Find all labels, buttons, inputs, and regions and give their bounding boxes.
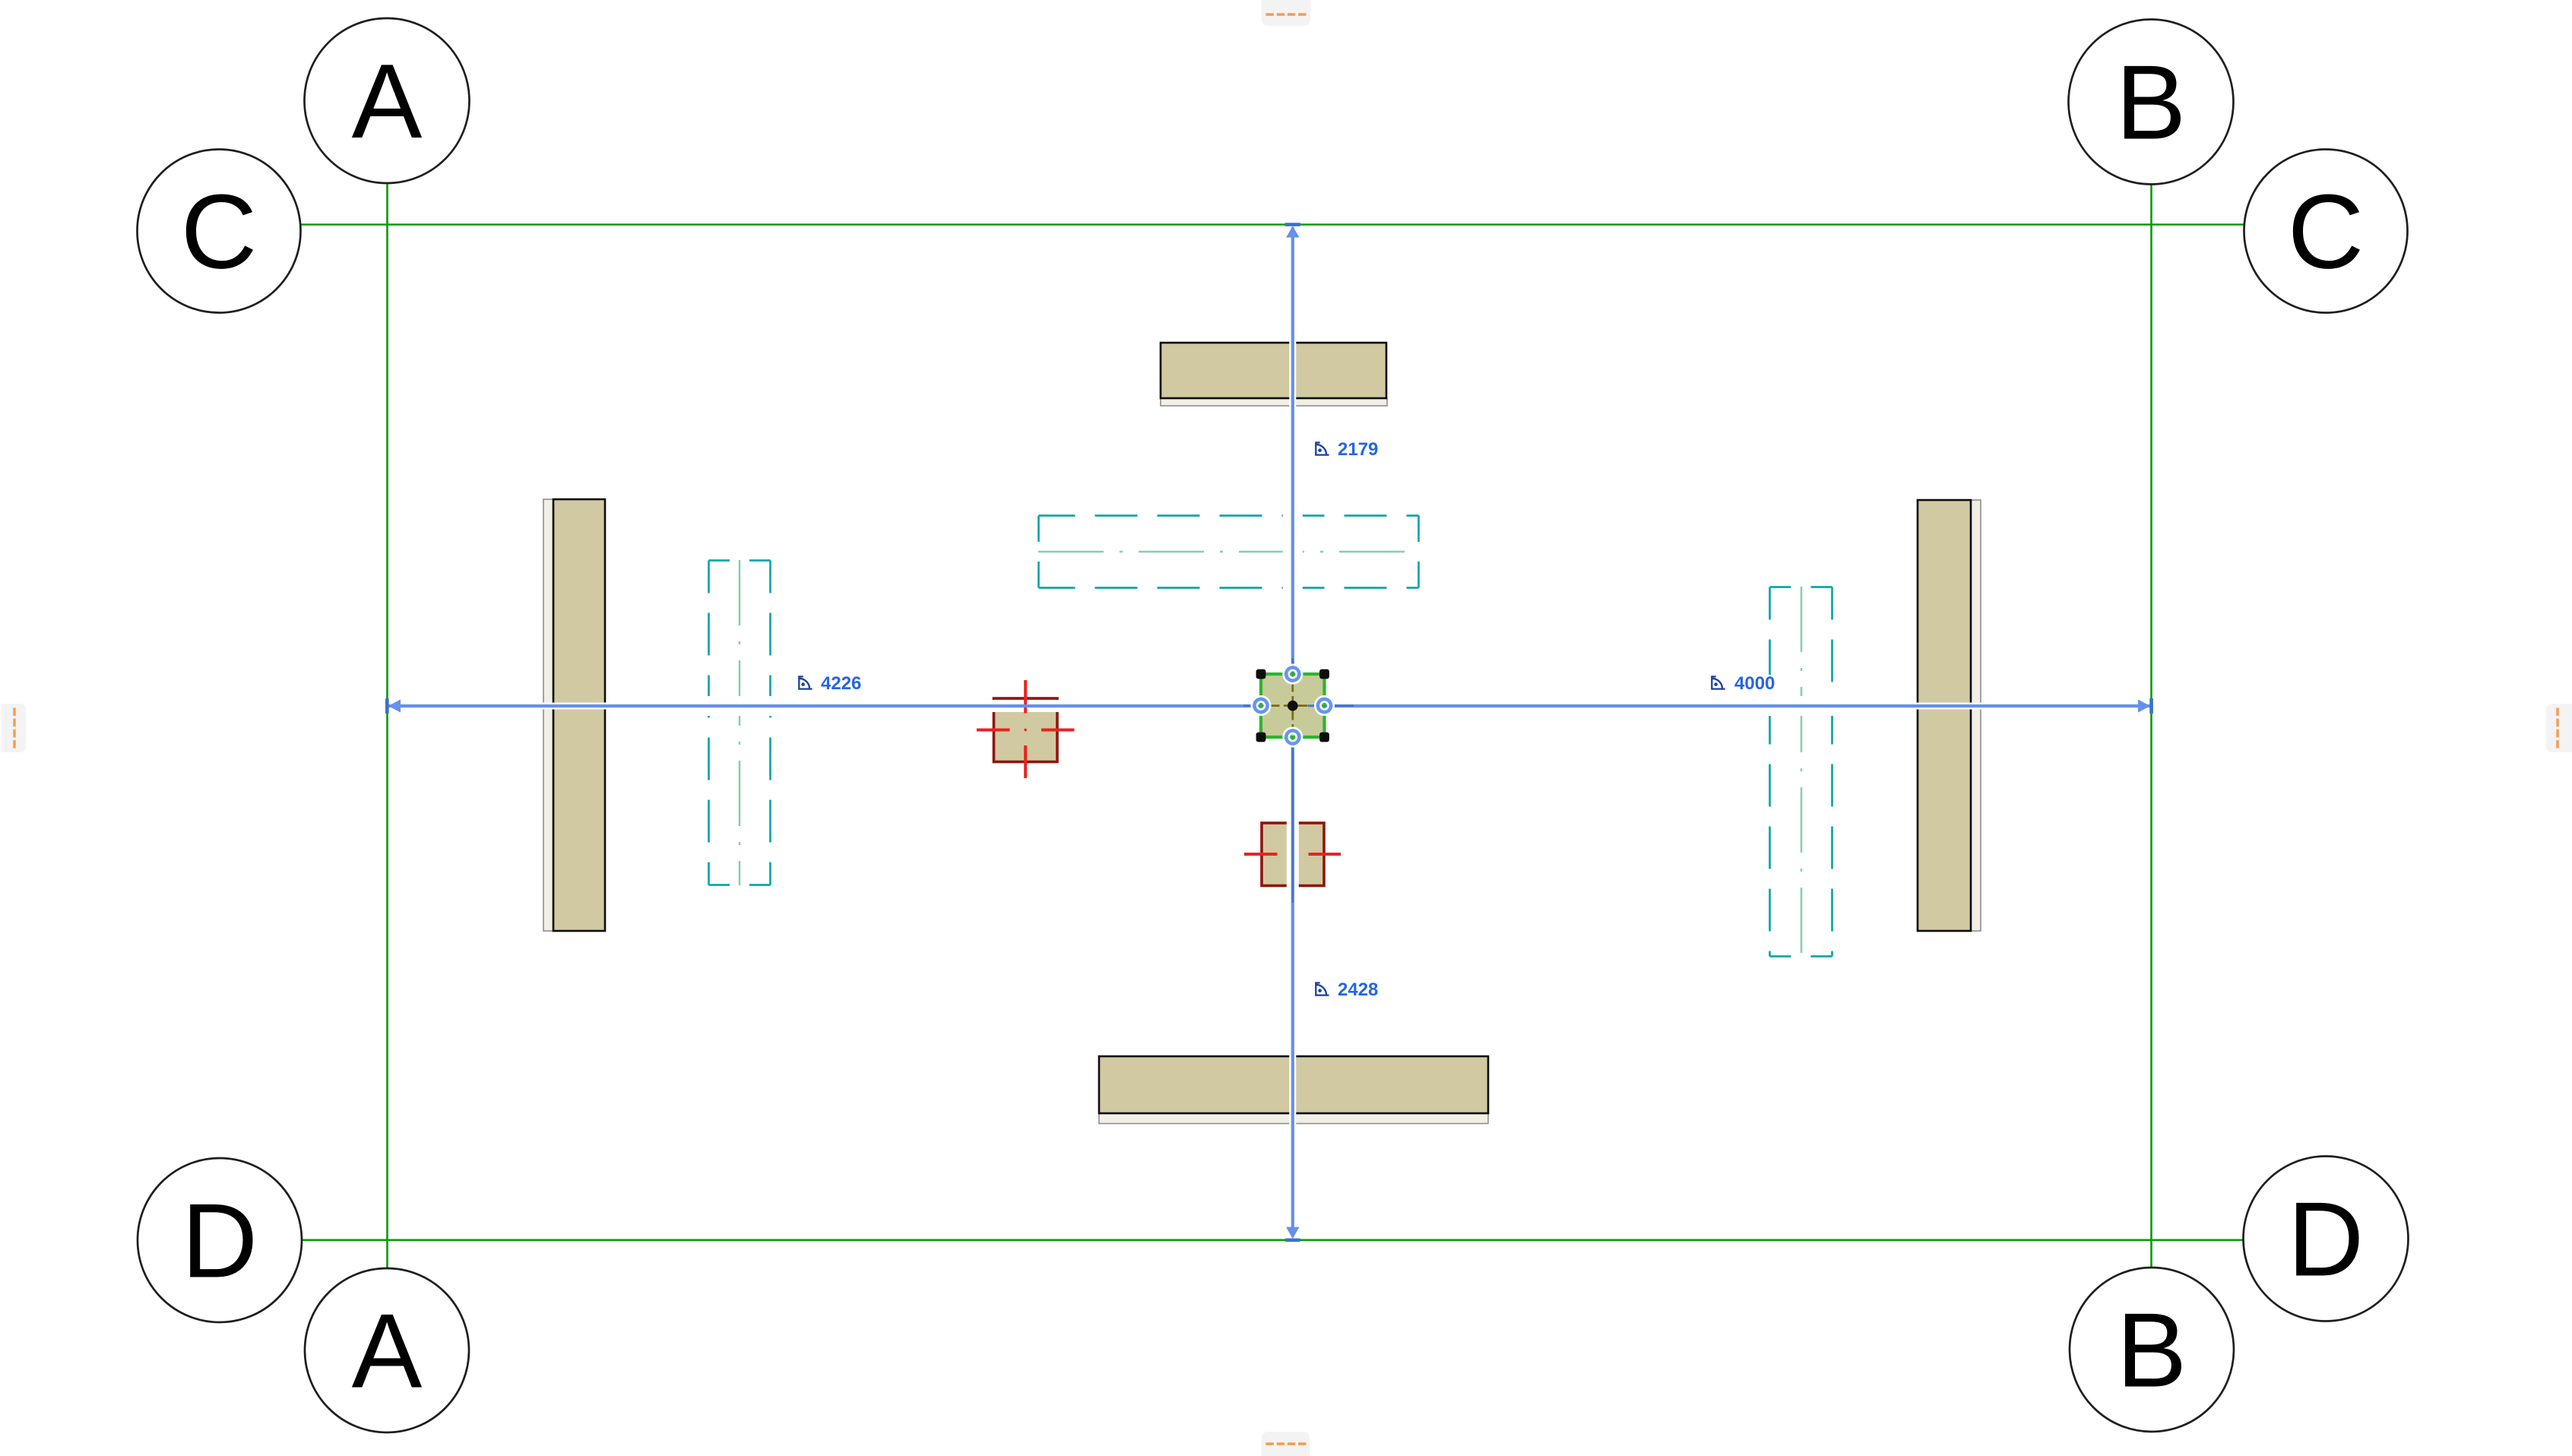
svg-text:C: C [181,173,257,291]
svg-text:C: C [2288,173,2364,291]
svg-text:4226: 4226 [821,673,861,694]
svg-text:D: D [2288,1181,2364,1299]
svg-text:D: D [182,1182,258,1300]
svg-text:A: A [352,43,423,160]
svg-text:B: B [2116,44,2187,162]
svg-text:B: B [2117,1292,2187,1410]
svg-text:4000: 4000 [1734,673,1775,694]
svg-text:A: A [352,1293,423,1410]
svg-text:2428: 2428 [1338,980,1378,1000]
svg-text:2179: 2179 [1338,439,1378,460]
